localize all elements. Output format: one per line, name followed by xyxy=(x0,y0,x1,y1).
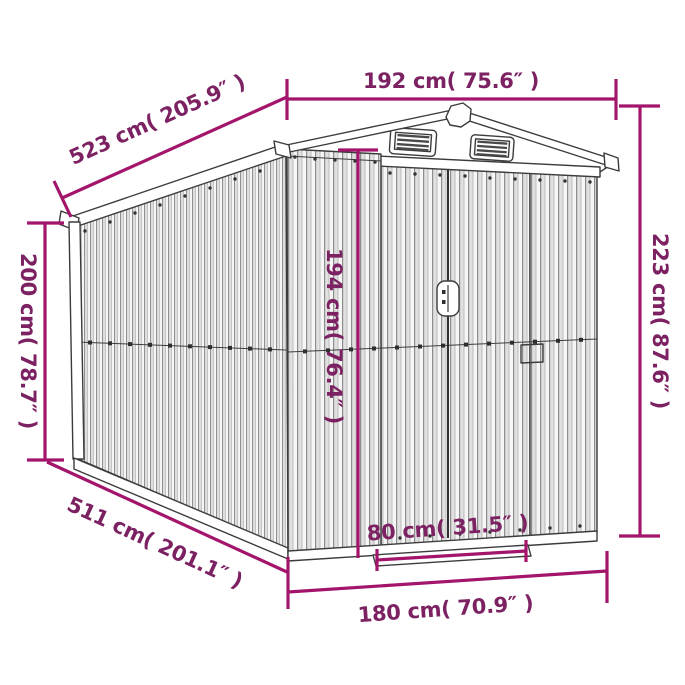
dim-total-height: 223 cm( 87.6″ ) xyxy=(619,106,672,536)
dim-wall-height: 200 cm( 78.7″ ) xyxy=(16,223,64,460)
roof-apex-cap xyxy=(446,103,471,127)
dim-door-height-label: 194 cm( 76.4″ ) xyxy=(322,248,346,424)
dim-front-width-label: 180 cm( 70.9″ ) xyxy=(357,591,534,627)
dim-total-height-label: 223 cm( 87.6″ ) xyxy=(648,233,672,409)
dim-front-width: 180 cm( 70.9″ ) xyxy=(288,551,607,627)
dimension-diagram: 192 cm( 75.6″ ) 523 cm( 205.9″ ) 200 cm(… xyxy=(0,0,685,685)
center-sliding-doors xyxy=(381,165,530,546)
door-handle xyxy=(437,281,459,316)
dim-wall-height-label: 200 cm( 78.7″ ) xyxy=(16,253,40,429)
dim-roof-width-label: 192 cm( 75.6″ ) xyxy=(363,69,539,93)
gable-vent-left xyxy=(389,127,437,156)
gable-vent-right xyxy=(470,135,515,162)
shed-diagram-svg: 192 cm( 75.6″ ) 523 cm( 205.9″ ) 200 cm(… xyxy=(0,0,685,685)
right-fixed-panel xyxy=(530,172,597,536)
